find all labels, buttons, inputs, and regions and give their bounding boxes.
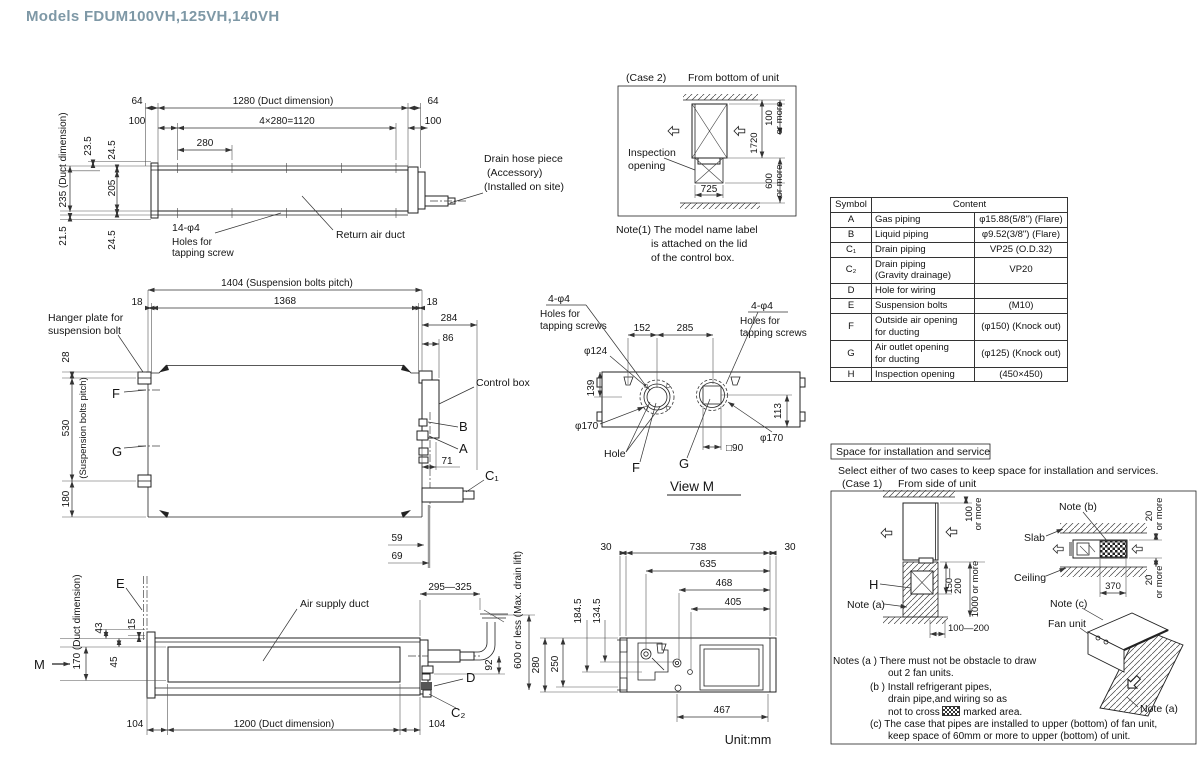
plan-view: 1404 (Suspension bolts pitch) 18 1368 18…	[48, 278, 530, 568]
value-cell: (φ150) (Knock out)	[975, 314, 1068, 341]
label-air-supply-duct: Air supply duct	[300, 598, 369, 610]
plan-view-extension-lines	[62, 290, 477, 517]
dim-134-5: 134.5	[592, 598, 603, 623]
dim-600-or-less: 600 or less (Max. drain lift)	[513, 551, 524, 669]
dim-100-c1-more: or more	[973, 498, 984, 531]
label-note-a: Note (a)	[847, 599, 885, 611]
symbol-cell: G	[831, 340, 872, 367]
dim-1404: 1404 (Suspension bolts pitch)	[221, 278, 353, 289]
dim-530-note: (Suspension bolts pitch)	[78, 377, 89, 478]
notes-line-a1: Notes (a ) There must not be obstacle to…	[833, 656, 1036, 667]
dim-152: 152	[634, 323, 651, 334]
control-box	[422, 380, 439, 438]
dim-180: 180	[61, 490, 72, 507]
dim-1368: 1368	[274, 296, 297, 307]
label-holes-left-1: Holes for	[540, 309, 581, 320]
dim-530: 530	[61, 419, 72, 436]
dim-phi124: φ124	[584, 346, 608, 357]
label-14-phi4: 14-φ4	[172, 222, 200, 234]
dim-69: 69	[391, 551, 403, 562]
dim-725: 725	[701, 184, 718, 195]
dim-738: 738	[690, 542, 707, 553]
label-drain-hose-3: (Installed on site)	[484, 181, 564, 193]
value-cell: (φ125) (Knock out)	[975, 340, 1068, 367]
dim-205: 205	[107, 179, 118, 196]
dim-285: 285	[677, 323, 694, 334]
notes-line-b3: not to cross marked area.	[888, 706, 1022, 718]
installation-title: Space for installation and service	[836, 446, 990, 458]
dim-64-left: 64	[131, 96, 143, 107]
airflow-arrow-icon	[668, 127, 679, 136]
dim-24-5-bottom: 24.5	[107, 230, 118, 250]
label-B: B	[459, 419, 468, 434]
view-m: 152 285 4-φ4 Holes for tapping screws 4-…	[540, 293, 807, 495]
symbol-cell: A	[831, 212, 872, 227]
airflow-arrow-icon	[1053, 545, 1063, 554]
dim-295-325: 295—325	[428, 582, 472, 593]
dim-18-right: 18	[426, 297, 438, 308]
front-view-unit-outline	[151, 163, 468, 218]
engineering-drawing-page: { "title":"Models FDUM100VH,125VH,140VH"…	[0, 0, 1200, 761]
symbol-cell: B	[831, 227, 872, 242]
dim-1000-or-more: 1000 or more	[970, 561, 981, 618]
symbol-cell: H	[831, 367, 872, 382]
dim-square-90: □90	[726, 443, 744, 454]
label-F-plan: F	[112, 386, 120, 401]
pipe-A-gas	[417, 431, 428, 440]
label-M: M	[34, 657, 45, 672]
fan-unit-isometric: Note (c) Fan unit Note (a)	[1048, 598, 1183, 716]
dim-170-duct: 170 (Duct dimension)	[72, 574, 83, 669]
dim-1280-duct: 1280 (Duct dimension)	[233, 96, 334, 107]
desc-cell: Gas piping	[872, 212, 975, 227]
dim-600-or-more-2: or more	[774, 165, 785, 198]
label-holes-right-2: tapping screws	[740, 328, 807, 339]
label-hanger-plate-2: suspension bolt	[48, 325, 121, 337]
note-1-line: Note(1) The model name label	[616, 224, 758, 236]
table-row: BLiquid pipingφ9.52(3/8") (Flare)	[831, 227, 1068, 242]
dim-45: 45	[109, 656, 120, 668]
label-A: A	[459, 441, 468, 456]
label-holes-for: Holes for	[172, 237, 213, 248]
case2-wall-bottom-hatch	[680, 203, 760, 209]
table-row: DHole for wiring	[831, 284, 1068, 299]
desc-cell: Air outlet opening for ducting	[872, 340, 975, 367]
case2-title: From bottom of unit	[688, 72, 779, 84]
installation-section: Space for installation and service Selec…	[831, 444, 1196, 744]
dim-1720: 1720	[749, 132, 760, 153]
airflow-arrow-icon	[946, 528, 957, 537]
value-cell: (M10)	[975, 299, 1068, 314]
symbol-table: Symbol Content AGas pipingφ15.88(5/8") (…	[830, 197, 1068, 382]
table-row: FOutside air opening for ducting(φ150) (…	[831, 314, 1068, 341]
dim-1200-duct: 1200 (Duct dimension)	[234, 719, 335, 730]
case1-unit	[903, 503, 938, 560]
label-tapping-screw: tapping screw	[172, 248, 234, 259]
dim-24-5-top: 24.5	[107, 140, 118, 160]
front-view: 1280 (Duct dimension) 4×280=1120 280 64 …	[58, 96, 564, 259]
dim-23-5: 23.5	[83, 136, 94, 156]
dim-30-left: 30	[600, 542, 612, 553]
desc-cell: Hole for wiring	[872, 284, 975, 299]
label-slab: Slab	[1024, 532, 1045, 544]
symbol-cell: C₁	[831, 242, 872, 257]
desc-cell: Outside air opening for ducting	[872, 314, 975, 341]
label-G-plan: G	[112, 444, 122, 459]
dim-64-right: 64	[427, 96, 439, 107]
notes-line-b1: (b ) Install refrigerant pipes,	[870, 682, 992, 693]
plan-view-outline	[138, 365, 432, 519]
dim-28: 28	[61, 351, 72, 363]
pipe-B-liquid	[419, 419, 427, 426]
table-row: C₂Drain piping (Gravity drainage)VP20	[831, 257, 1068, 284]
symbol-cell: C₂	[831, 257, 872, 284]
dim-184-5: 184.5	[573, 598, 584, 623]
dim-20-bottom-more: or more	[1154, 566, 1165, 599]
table-row: AGas pipingφ15.88(5/8") (Flare)	[831, 212, 1068, 227]
case1-ceiling-figure: Note (b) Slab Ceiling 370 20 or more 20 …	[1014, 498, 1165, 599]
label-inspection-1: Inspection	[628, 147, 676, 159]
label-F-viewm: F	[632, 460, 640, 475]
notes-line-b3-post: marked area.	[963, 707, 1022, 718]
drain-pipe	[428, 650, 460, 662]
dim-284: 284	[441, 313, 458, 324]
symbol-cell: D	[831, 284, 872, 299]
notes-line-a2: out 2 fan units.	[888, 668, 954, 679]
note-1-line: is attached on the lid	[651, 238, 747, 250]
dim-100-200: 100—200	[948, 623, 989, 634]
dim-100-left: 100	[129, 116, 146, 127]
dim-86: 86	[442, 333, 454, 344]
dim-104-right: 104	[429, 719, 446, 730]
label-note-a-iso: Note (a)	[1140, 703, 1178, 715]
symbol-cell: F	[831, 314, 872, 341]
case2-view: (Case 2) From bottom of unit Inspection …	[618, 72, 796, 216]
label-ceiling: Ceiling	[1014, 572, 1046, 584]
desc-cell: Suspension bolts	[872, 299, 975, 314]
marked-area-swatch	[942, 706, 960, 716]
dim-370: 370	[1105, 581, 1121, 592]
case1-label: (Case 1)	[842, 478, 882, 490]
label-C2: C₂	[451, 705, 465, 720]
col-content: Content	[872, 198, 1068, 213]
label-note-b: Note (b)	[1059, 501, 1097, 513]
dim-467: 467	[714, 705, 731, 716]
label-C1: C₁	[485, 468, 499, 483]
dim-18-left: 18	[131, 297, 143, 308]
dim-30-right: 30	[784, 542, 796, 553]
side-view-drain-assembly: 295—325 92 D C₂	[408, 582, 508, 720]
dim-139: 139	[586, 379, 597, 396]
label-hole: Hole	[604, 448, 626, 460]
pipe-C1-drain	[422, 488, 463, 502]
dim-113: 113	[773, 403, 784, 419]
dim-59: 59	[391, 533, 403, 544]
airflow-arrow-icon	[881, 529, 892, 538]
dim-100-right: 100	[425, 116, 442, 127]
dim-43: 43	[94, 622, 105, 634]
value-cell	[975, 284, 1068, 299]
table-row: HInspection opening(450×450)	[831, 367, 1068, 382]
label-4phi4-right: 4-φ4	[751, 300, 773, 312]
dim-71: 71	[441, 456, 453, 467]
dim-235-duct: 235 (Duct dimension)	[58, 112, 69, 207]
dim-635: 635	[700, 559, 717, 570]
desc-cell: Liquid piping	[872, 227, 975, 242]
dim-15: 15	[127, 618, 138, 630]
drain-C2	[423, 690, 431, 697]
dim-250: 250	[550, 655, 561, 672]
bottom-view: 30 738 30 635 468 405 280 250 184.5 134.…	[490, 542, 796, 747]
dim-20-top-more: or more	[1154, 498, 1165, 531]
airflow-arrow-icon	[1132, 545, 1142, 554]
table-header-row: Symbol Content	[831, 198, 1068, 213]
value-cell: φ15.88(5/8") (Flare)	[975, 212, 1068, 227]
label-holes-left-2: tapping screws	[540, 321, 607, 332]
label-hanger-plate-1: Hanger plate for	[48, 312, 124, 324]
desc-cell: Drain piping (Gravity drainage)	[872, 257, 975, 284]
label-drain-hose-1: Drain hose piece	[484, 153, 563, 165]
label-inspection-2: opening	[628, 160, 666, 172]
dim-92: 92	[484, 659, 495, 671]
marked-area-block	[1100, 541, 1126, 557]
case2-wall-top-hatch	[683, 94, 758, 100]
unit-mm-label: Unit:mm	[725, 733, 772, 747]
notes-line-c2: keep space of 60mm or more to upper (bot…	[888, 731, 1130, 742]
table-row: ESuspension bolts(M10)	[831, 299, 1068, 314]
value-cell: VP25 (O.D.32)	[975, 242, 1068, 257]
label-4phi4-left: 4-φ4	[548, 293, 570, 305]
label-note-c: Note (c)	[1050, 598, 1087, 610]
installation-intro: Select either of two cases to keep space…	[838, 465, 1158, 477]
dim-405: 405	[725, 597, 742, 608]
table-row: GAir outlet opening for ducting(φ125) (K…	[831, 340, 1068, 367]
side-view: E M Air supply duct 170 (Duct dimension)…	[34, 574, 508, 735]
airflow-arrow-icon	[734, 127, 745, 136]
label-D: D	[466, 670, 475, 685]
dim-104-left: 104	[127, 719, 144, 730]
view-m-title: View M	[670, 479, 714, 494]
desc-cell: Inspection opening	[872, 367, 975, 382]
table-row: C₁Drain pipingVP25 (O.D.32)	[831, 242, 1068, 257]
dim-100-or-more-2: or more	[774, 102, 785, 135]
case1-side-figure: 100 or more H Note (a) 150— 200 1000 or …	[847, 490, 989, 638]
dim-280-h: 280	[531, 656, 542, 673]
dim-phi170-left: φ170	[575, 421, 599, 432]
air-supply-duct-opening	[168, 647, 400, 682]
dim-4x280: 4×280=1120	[259, 116, 315, 127]
col-symbol: Symbol	[831, 198, 872, 213]
label-G-viewm: G	[679, 456, 689, 471]
label-drain-hose-2: (Accessory)	[487, 167, 542, 179]
label-H: H	[869, 577, 878, 592]
notes-line-c1: (c) The case that pipes are installed to…	[870, 719, 1157, 730]
label-holes-right-1: Holes for	[740, 316, 781, 327]
case2-label: (Case 2)	[626, 72, 666, 84]
dim-200: 200	[953, 578, 964, 594]
value-cell: VP20	[975, 257, 1068, 284]
notes-line-b2: drain pipe,and wiring so as	[888, 694, 1007, 705]
label-return-air-duct: Return air duct	[336, 229, 405, 241]
dim-468: 468	[716, 578, 733, 589]
value-cell: (450×450)	[975, 367, 1068, 382]
bottom-view-outline	[620, 638, 776, 692]
note-1-line: of the control box.	[651, 252, 734, 264]
plan-view-dimension-lines	[72, 290, 477, 517]
case1-title: From side of unit	[898, 478, 976, 490]
dim-21-5: 21.5	[58, 226, 69, 246]
bottom-view-dims: 30 738 30 635 468 405 280 250 184.5 134.…	[490, 542, 796, 722]
symbol-cell: E	[831, 299, 872, 314]
dim-phi170-right: φ170	[760, 433, 784, 444]
dim-280: 280	[197, 138, 214, 149]
wiring-hole-D	[421, 682, 432, 690]
label-control-box: Control box	[476, 377, 530, 389]
value-cell: φ9.52(3/8") (Flare)	[975, 227, 1068, 242]
label-E-bolt: E	[116, 576, 125, 591]
desc-cell: Drain piping	[872, 242, 975, 257]
notes-line-b3-pre: not to cross	[888, 707, 940, 718]
